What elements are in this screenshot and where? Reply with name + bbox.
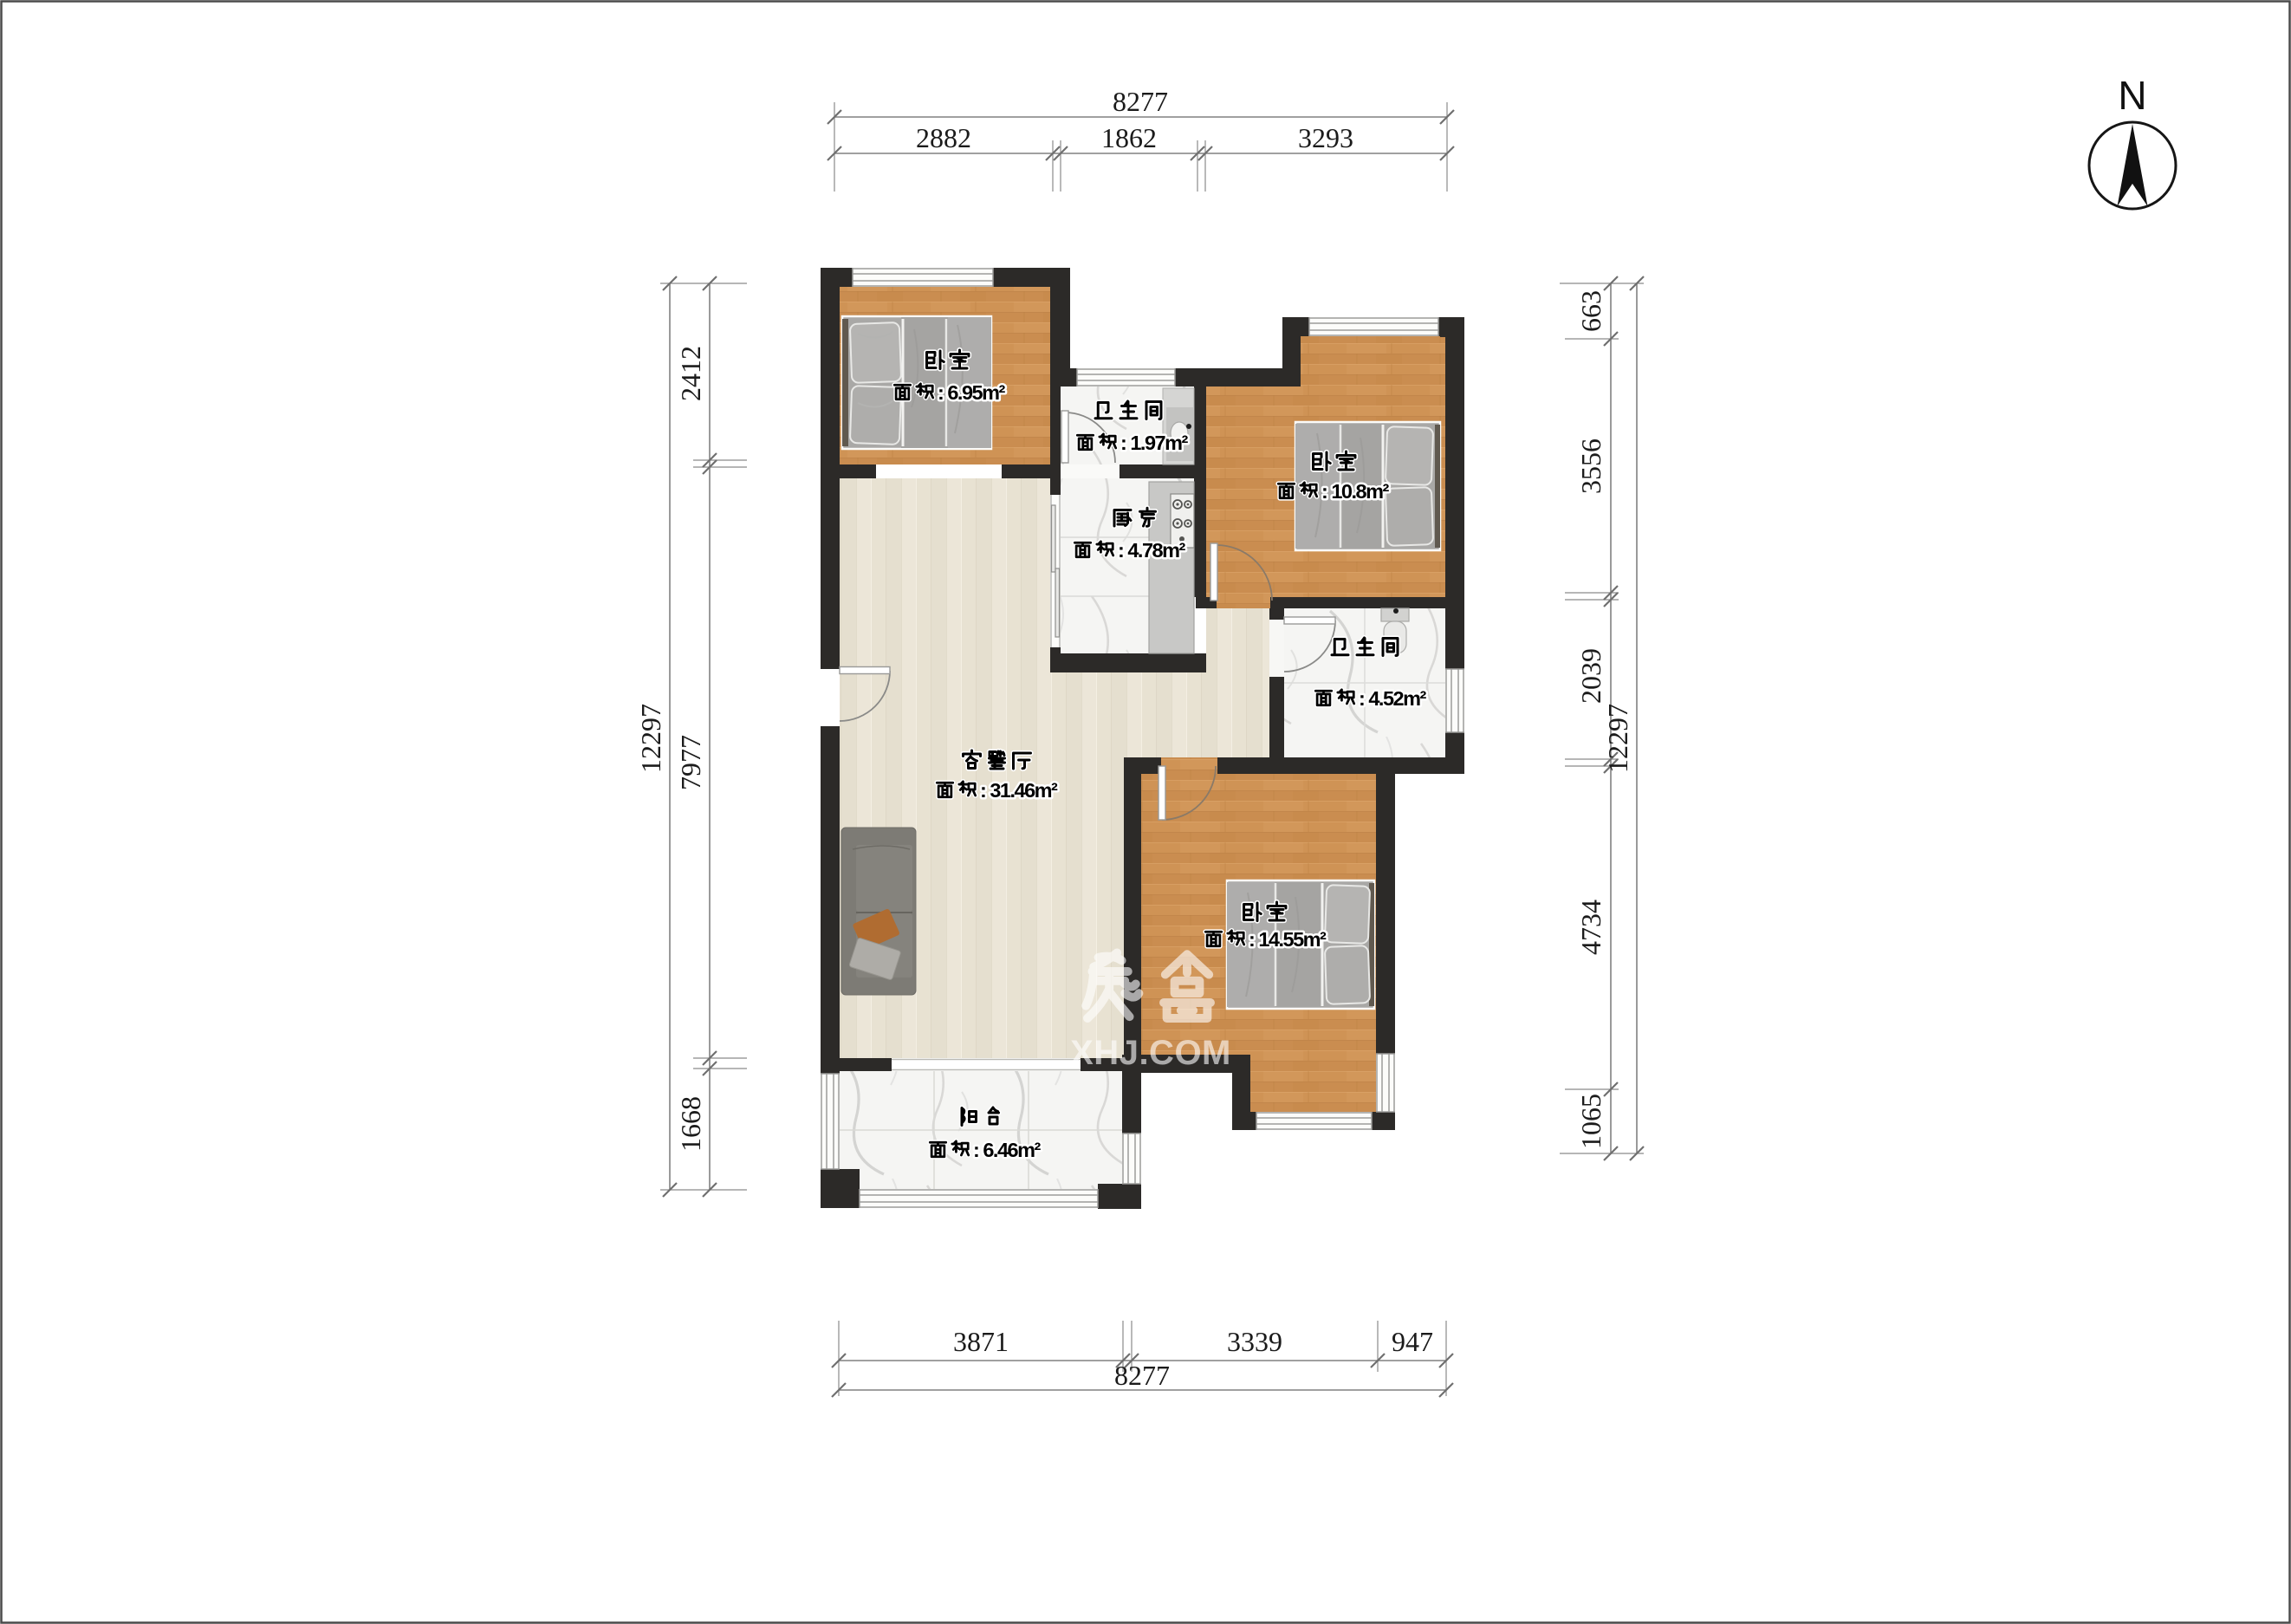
svg-text:: 1.97m²: : 1.97m² [1120,432,1188,454]
svg-text:12297: 12297 [1602,704,1633,773]
svg-text:: 14.55m²: : 14.55m² [1249,928,1327,951]
svg-text:8277: 8277 [1114,1360,1170,1391]
svg-text:: 4.52m²: : 4.52m² [1359,687,1426,710]
svg-text:663: 663 [1575,290,1606,332]
svg-text:1065: 1065 [1575,1094,1606,1149]
svg-text:XHJ.COM: XHJ.COM [1070,1034,1231,1072]
svg-text:3339: 3339 [1227,1326,1282,1357]
svg-text:N: N [2118,73,2146,118]
svg-text:2882: 2882 [916,122,971,153]
svg-text:4734: 4734 [1575,900,1606,955]
svg-text:: 10.8m²: : 10.8m² [1321,480,1389,503]
svg-text:7977: 7977 [675,735,706,790]
svg-text:: 6.46m²: : 6.46m² [973,1139,1041,1161]
svg-text:: 4.78m²: : 4.78m² [1118,539,1185,562]
svg-text:8277: 8277 [1113,86,1168,117]
svg-text:1862: 1862 [1101,122,1157,153]
svg-text:2412: 2412 [675,346,706,401]
svg-text:2039: 2039 [1575,648,1606,704]
svg-text:947: 947 [1392,1326,1433,1357]
svg-text:: 6.95m²: : 6.95m² [938,381,1005,404]
svg-text:: 31.46m²: : 31.46m² [980,779,1058,802]
svg-text:12297: 12297 [635,704,666,773]
svg-text:3871: 3871 [953,1326,1009,1357]
svg-text:3293: 3293 [1298,122,1353,153]
svg-text:3556: 3556 [1575,438,1606,494]
svg-text:1668: 1668 [675,1096,706,1152]
